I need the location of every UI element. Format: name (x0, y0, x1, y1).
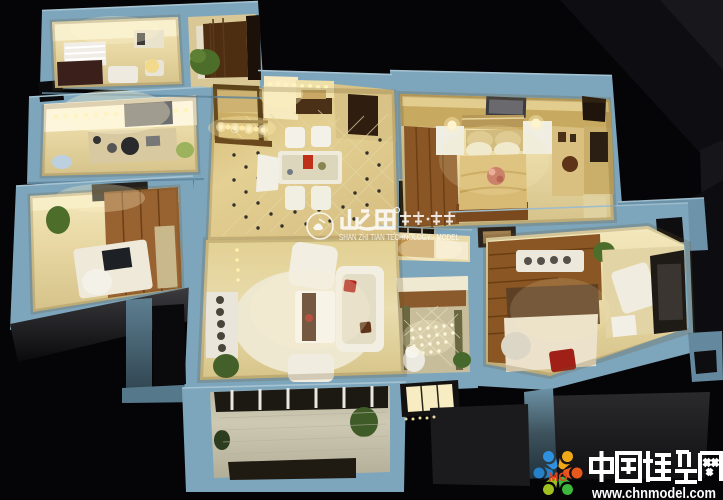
svg-text:SHAN ZHI TIAN TECHNOLOGY · MOD: SHAN ZHI TIAN TECHNOLOGY · MODEL (339, 232, 459, 242)
svg-text:www.chnmodel.com: www.chnmodel.com (591, 485, 716, 500)
svg-text:MO: MO (548, 470, 567, 484)
